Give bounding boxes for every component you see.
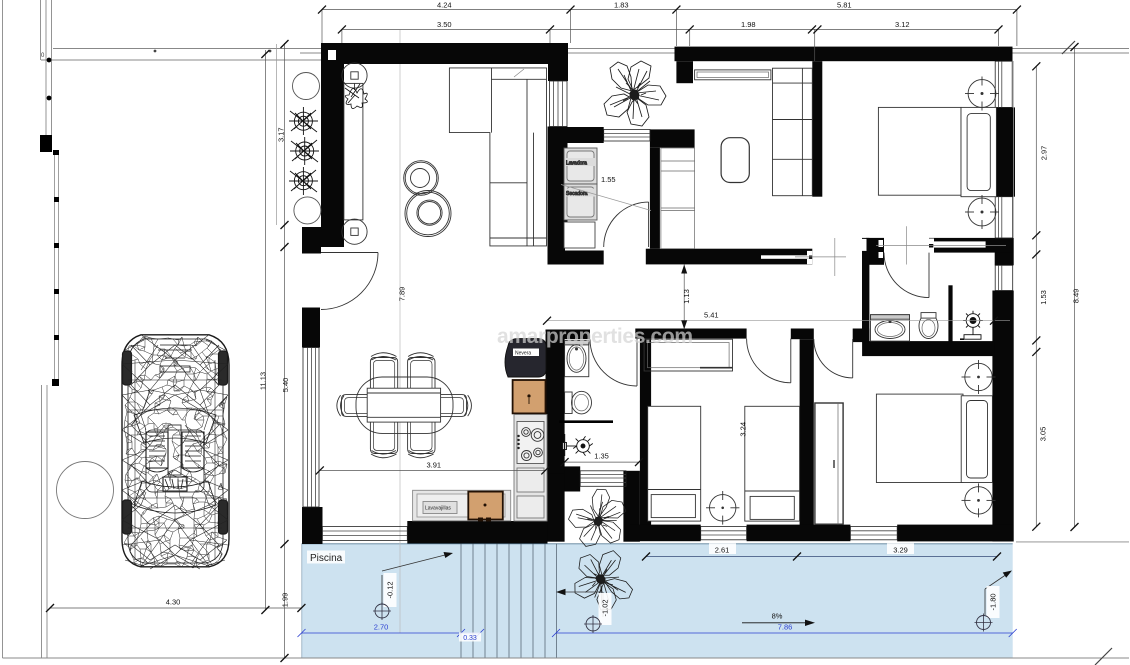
svg-text:1.99: 1.99 (281, 593, 290, 608)
svg-text:1.53: 1.53 (1039, 290, 1048, 305)
svg-text:-1.80: -1.80 (989, 593, 998, 610)
svg-text:5.81: 5.81 (837, 0, 852, 9)
svg-text:Piscina: Piscina (310, 553, 343, 564)
svg-text:Nevera: Nevera (515, 351, 531, 357)
svg-text:3.91: 3.91 (426, 461, 441, 470)
svg-text:-0.12: -0.12 (386, 581, 395, 598)
svg-text:3.05: 3.05 (1039, 427, 1048, 442)
svg-text:1.13: 1.13 (682, 289, 691, 304)
svg-text:11.13: 11.13 (259, 372, 268, 390)
svg-text:1.35: 1.35 (594, 452, 609, 461)
svg-text:2.61: 2.61 (715, 546, 730, 555)
svg-text:3.24: 3.24 (739, 422, 748, 437)
svg-text:5.40: 5.40 (281, 378, 290, 393)
svg-text:0.33: 0.33 (463, 635, 477, 642)
svg-text:3.50: 3.50 (437, 20, 452, 29)
svg-text:2.97: 2.97 (1040, 146, 1049, 161)
svg-text:Lavavajillas: Lavavajillas (425, 506, 451, 512)
svg-text:3.17: 3.17 (277, 127, 286, 142)
svg-text:4.30: 4.30 (166, 598, 181, 607)
svg-text:4.24: 4.24 (437, 0, 452, 9)
svg-text:-1.02: -1.02 (601, 599, 610, 616)
svg-text:7.89: 7.89 (398, 287, 407, 302)
svg-text:2.70: 2.70 (374, 623, 389, 632)
svg-text:Secadora: Secadora (566, 191, 588, 197)
svg-text:Lavadora: Lavadora (566, 161, 587, 167)
svg-text:8%: 8% (772, 612, 783, 621)
svg-text:1.55: 1.55 (601, 175, 616, 184)
svg-text:3.29: 3.29 (893, 546, 908, 555)
svg-text:amarproperties.com: amarproperties.com (497, 325, 693, 348)
svg-text:5.41: 5.41 (704, 310, 719, 319)
svg-text:3.12: 3.12 (895, 20, 910, 29)
svg-text:1.83: 1.83 (614, 0, 629, 9)
svg-text:1.98: 1.98 (741, 20, 756, 29)
svg-text:8.49: 8.49 (1072, 289, 1081, 304)
svg-text:7.86: 7.86 (778, 623, 793, 632)
